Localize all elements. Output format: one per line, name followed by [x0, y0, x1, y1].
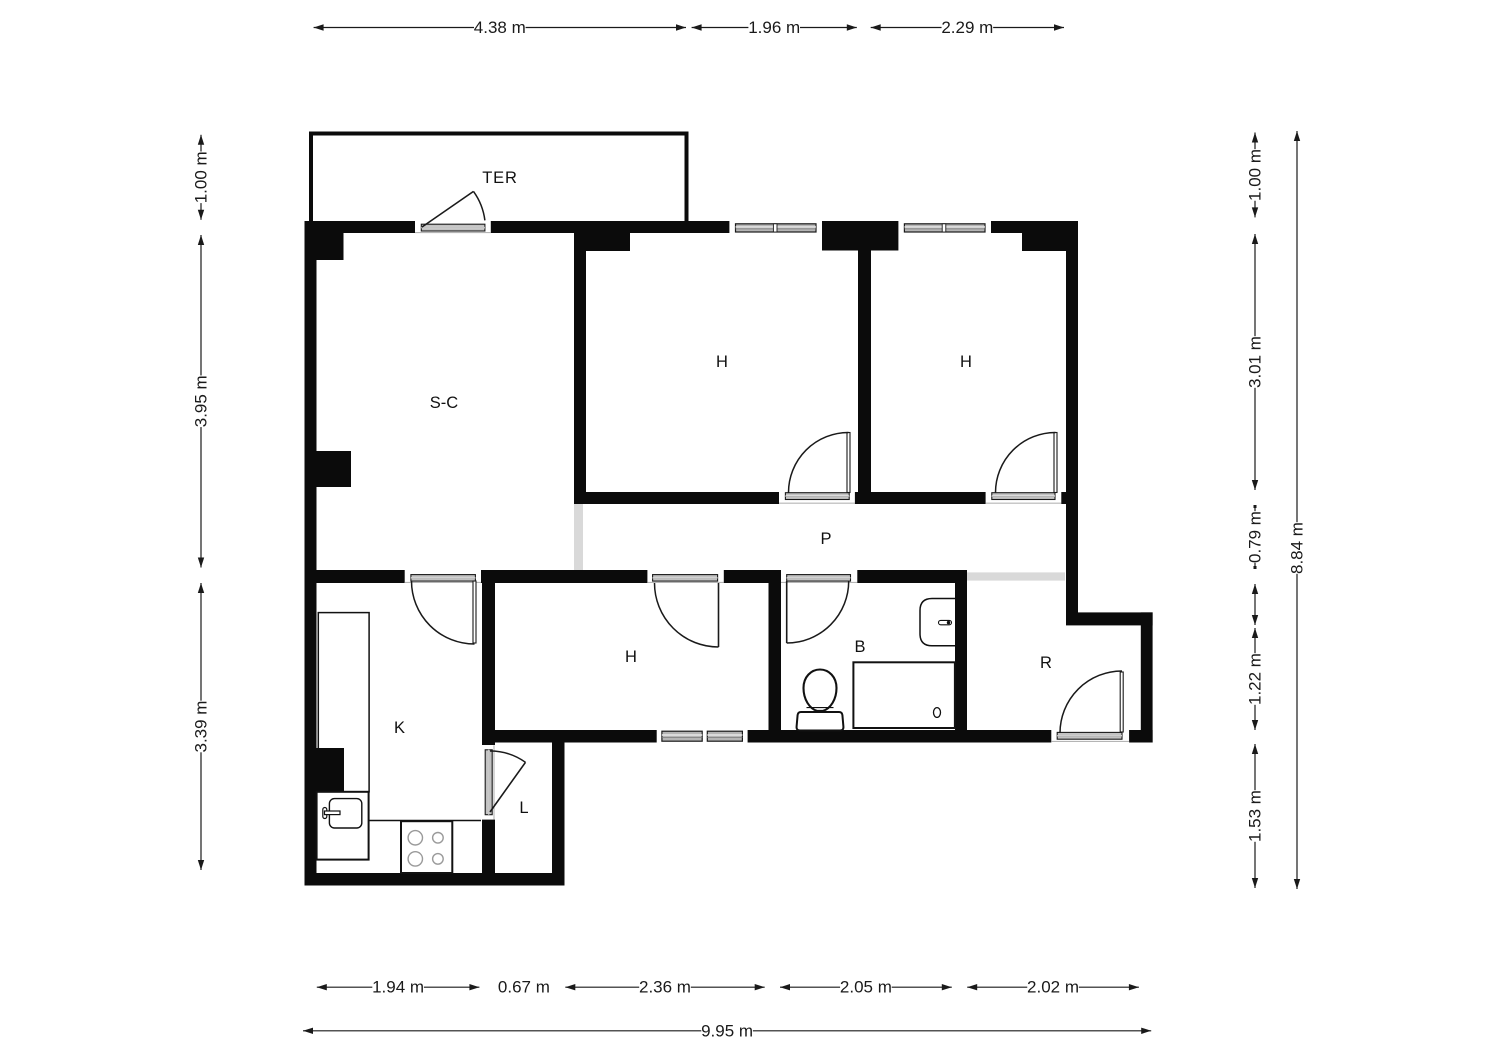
svg-text:9.95 m: 9.95 m [701, 1021, 753, 1040]
svg-text:2.29 m: 2.29 m [941, 18, 993, 37]
svg-text:8.84 m: 8.84 m [1288, 522, 1307, 574]
svg-text:2.36 m: 2.36 m [639, 978, 691, 997]
svg-text:1.96 m: 1.96 m [748, 18, 800, 37]
svg-text:0.67 m: 0.67 m [498, 978, 550, 997]
svg-text:0.79 m: 0.79 m [1246, 511, 1265, 563]
svg-text:3.95 m: 3.95 m [192, 375, 211, 427]
svg-text:R: R [1040, 654, 1052, 672]
svg-text:1.94 m: 1.94 m [372, 978, 424, 997]
svg-text:3.39 m: 3.39 m [192, 701, 211, 753]
svg-text:S-C: S-C [430, 394, 459, 412]
svg-text:3.01 m: 3.01 m [1246, 336, 1265, 388]
svg-text:4.38 m: 4.38 m [474, 18, 526, 37]
svg-text:2.05 m: 2.05 m [840, 978, 892, 997]
svg-text:TER: TER [482, 169, 517, 187]
svg-text:K: K [394, 719, 405, 737]
svg-text:L: L [519, 799, 528, 817]
svg-text:2.02 m: 2.02 m [1027, 978, 1079, 997]
svg-text:P: P [820, 530, 831, 548]
svg-text:1.00 m: 1.00 m [192, 151, 211, 203]
svg-text:1.00 m: 1.00 m [1246, 149, 1265, 201]
svg-text:H: H [625, 648, 637, 666]
svg-text:1.53 m: 1.53 m [1246, 790, 1265, 842]
svg-text:H: H [960, 353, 972, 371]
svg-text:B: B [854, 638, 865, 656]
svg-text:H: H [716, 353, 728, 371]
svg-text:1.22 m: 1.22 m [1246, 653, 1265, 705]
